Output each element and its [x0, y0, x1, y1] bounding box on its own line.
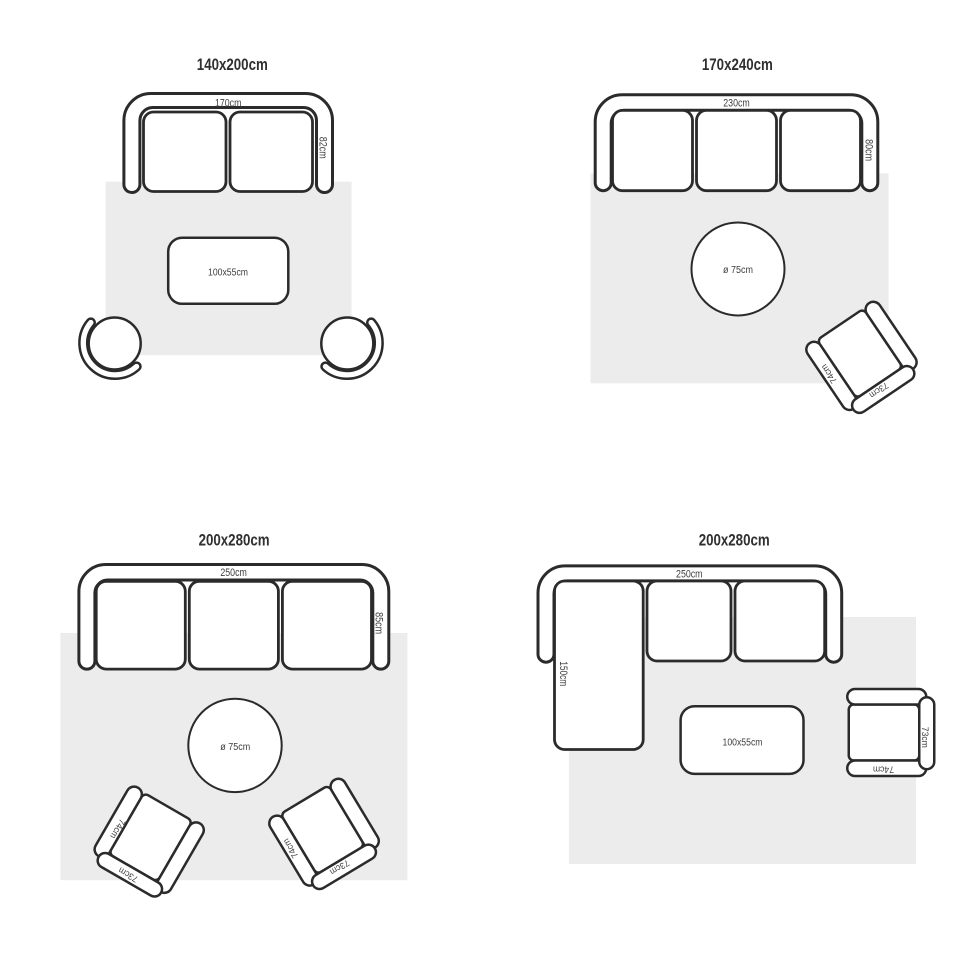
svg-text:74cm: 74cm	[873, 765, 894, 775]
svg-text:140x200cm: 140x200cm	[197, 55, 268, 74]
svg-text:250cm: 250cm	[676, 568, 703, 580]
svg-text:ø 75cm: ø 75cm	[723, 265, 753, 276]
svg-text:100x55cm: 100x55cm	[208, 268, 248, 279]
svg-text:150cm: 150cm	[557, 661, 569, 686]
svg-text:230cm: 230cm	[723, 97, 750, 109]
svg-text:80cm: 80cm	[863, 139, 875, 161]
svg-text:170cm: 170cm	[215, 97, 242, 109]
svg-text:250cm: 250cm	[220, 567, 247, 579]
svg-text:200x280cm: 200x280cm	[699, 531, 770, 550]
svg-text:ø 75cm: ø 75cm	[220, 742, 250, 753]
svg-text:200x280cm: 200x280cm	[199, 531, 270, 550]
svg-text:85cm: 85cm	[372, 612, 384, 634]
svg-text:82cm: 82cm	[317, 137, 329, 159]
svg-text:100x55cm: 100x55cm	[723, 738, 763, 749]
svg-text:73cm: 73cm	[920, 727, 930, 748]
svg-text:170x240cm: 170x240cm	[702, 55, 773, 74]
